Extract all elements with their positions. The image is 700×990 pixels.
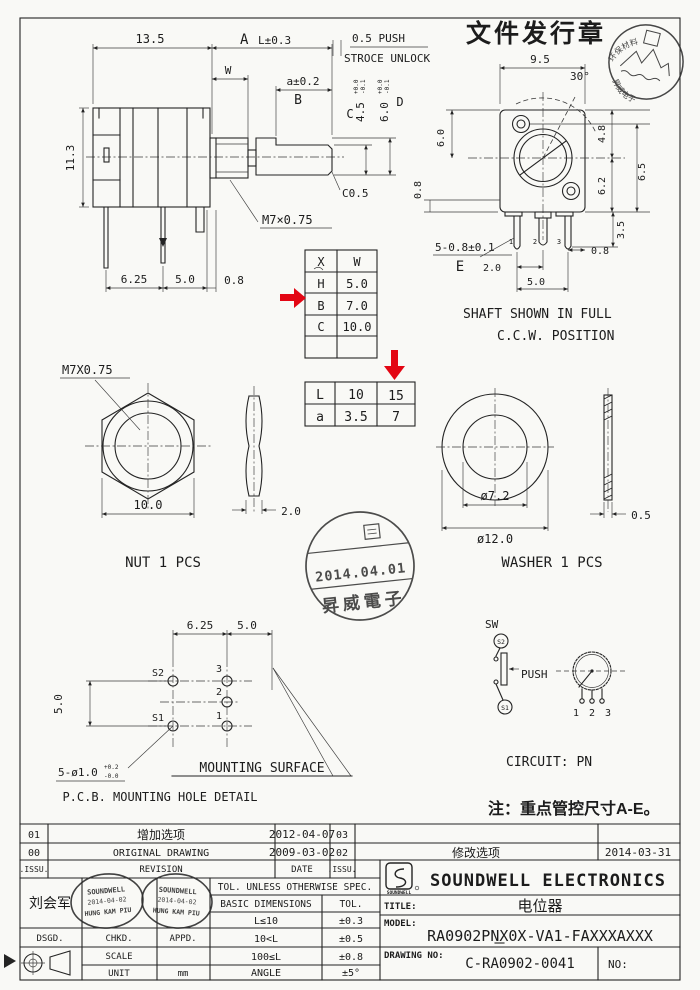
front-view: 30° 1 2 3 9.5 4.8 6.2 6.5 3.5 0.8 6.0: [413, 53, 650, 344]
option-val-b: 7.0: [346, 299, 368, 313]
sw-label: SW: [485, 618, 499, 631]
push-stroke-note: STROCE UNLOCK: [344, 52, 430, 65]
pcb-dim-5-0-v: 5.0: [52, 694, 65, 714]
dim-C-value: 4.5: [354, 102, 367, 122]
len-L: L: [316, 388, 324, 403]
dim-W: W: [225, 64, 232, 77]
tol-row4-range: ANGLE: [251, 968, 281, 979]
pcb-dim-6-25: 6.25: [187, 619, 214, 632]
stamp1-name: HUNG KAM PIU: [84, 906, 132, 918]
washer-view: ø7.2 ø12.0 WASHER 1 PCS 0.5: [436, 388, 651, 571]
label-appd: APPD.: [169, 934, 196, 944]
dim-2-0: 2.0: [483, 263, 501, 274]
len-10: 10: [348, 388, 364, 403]
dim-5-0: 5.0: [175, 273, 195, 286]
hdr-date: DATE: [291, 865, 313, 875]
key-dimensions-note: 注：重点管控尺寸A-E。: [488, 799, 660, 818]
washer-dim-inner: ø7.2: [481, 489, 510, 503]
pin-side-2: [161, 207, 165, 263]
engineering-drawing: 文件发行章 环保材料 昇威电子 13.5: [0, 0, 700, 990]
tol-row4-val: ±5°: [342, 968, 360, 979]
stamp2-name: HUNG KAM PIU: [153, 906, 200, 917]
drawing-sheet: 文件发行章 环保材料 昇威电子 13.5: [0, 0, 700, 990]
tol-row1-val: ±0.3: [339, 916, 363, 927]
first-angle-projection-icon: [21, 951, 70, 975]
tol-row2-range: 10<L: [254, 934, 278, 945]
option-val-c: 10.0: [343, 320, 372, 334]
dim-6-2: 6.2: [597, 177, 608, 195]
tol-col-basic: BASIC DIMENSIONS: [220, 899, 312, 910]
title-label: TITLE:: [384, 902, 417, 912]
pcb-dim-5-0-h: 5.0: [237, 619, 257, 632]
nut-dim-2: 2.0: [281, 505, 301, 518]
label-scale: SCALE: [105, 952, 132, 962]
dim-label-C: C: [346, 107, 353, 121]
rev-desc-02: 修改选项: [452, 845, 500, 860]
mounting-surface-label: MOUNTING SURFACE: [199, 761, 324, 776]
dim-pins: 5-0.8±0.1: [435, 241, 495, 254]
rev-date-00: 2009-03-02: [269, 846, 335, 859]
nut-caption: NUT 1 PCS: [125, 555, 201, 571]
dim-label-D: D: [396, 95, 403, 109]
title-block: 01 增加选项 2012-04-07 03 00 ORIGINAL DRAWIN…: [20, 824, 680, 980]
dim-11-3: 11.3: [64, 145, 77, 172]
mount-leg: [196, 207, 204, 232]
tol-row1-range: L≤10: [254, 916, 278, 927]
option-col-w: W: [353, 255, 361, 269]
dim-D-value: 6.0: [378, 102, 391, 122]
len-3-5: 3.5: [344, 410, 367, 425]
label-3: 3: [216, 664, 222, 675]
red-arrow-right-icon: [280, 288, 306, 308]
option-row-b: B: [317, 299, 324, 313]
company-name: SOUNDWELL ELECTRONICS: [430, 871, 666, 891]
pin-side-1: [104, 207, 108, 268]
dim-30deg: 30°: [570, 70, 590, 83]
circuit-caption: CIRCUIT: PN: [506, 755, 592, 770]
hdr-issu2: .ISSU.: [328, 865, 357, 874]
dim-C-tol-minus: -0.1: [360, 79, 367, 94]
label-s2: S2: [152, 668, 164, 679]
hdr-issu: .ISSU.: [20, 865, 49, 874]
pcb-holes-tol-p: +0.2: [104, 764, 119, 771]
washer-caption: WASHER 1 PCS: [501, 555, 602, 571]
dim-L-tol: L±0.3: [258, 34, 291, 47]
circuit-s2: S2: [497, 638, 505, 646]
label-unit: UNIT: [108, 969, 130, 979]
unit-value: mm: [178, 969, 189, 979]
sheet-border: [20, 18, 680, 980]
push-actuator: [501, 653, 507, 685]
option-val-h: 5.0: [346, 277, 368, 291]
dim-13-5: 13.5: [136, 32, 165, 46]
option-table: X W H 5.0 B 7.0 C 10.0: [280, 250, 377, 358]
stamp2-date: 2014-04-02: [157, 896, 197, 907]
dim-a-tol: a±0.2: [286, 75, 319, 88]
length-table: L 10 15 a 3.5 7: [305, 350, 415, 426]
rev-no-00: 00: [28, 848, 40, 859]
dim-label-E: E: [456, 259, 464, 275]
option-row-c: C: [317, 320, 324, 334]
soundwell-logo-icon: [386, 863, 419, 890]
dim-0-8-left: 0.8: [413, 181, 424, 199]
pot-pin-numbers: 1 2 3: [573, 708, 613, 719]
tol-header: TOL. UNLESS OTHERWISE SPEC.: [218, 882, 372, 893]
pcb-detail: S2 3 2 S1 1 6.25 5.0 5.0 5-ø1.0 +0.2 -0.…: [52, 619, 352, 804]
dim-6-25: 6.25: [121, 273, 148, 286]
caption-shaft-1: SHAFT SHOWN IN FULL: [463, 307, 612, 322]
pin-num-3: 3: [557, 238, 561, 246]
dim-6-0: 6.0: [436, 129, 447, 147]
stamp-company: 昇威電子: [321, 587, 407, 616]
len-a: a: [316, 410, 324, 425]
red-arrow-down-icon: [384, 350, 405, 380]
rev-no-02: 02: [336, 848, 348, 859]
washer-dim-t: 0.5: [631, 509, 651, 522]
fold-mark-icon: [4, 954, 16, 968]
date-stamp: 2014.04.01 昇威電子: [301, 507, 420, 626]
washer-dim-outer: ø12.0: [477, 532, 513, 546]
logo-text: SOUNDWELL: [387, 890, 412, 896]
chamfer-label: C0.5: [342, 187, 369, 200]
label-2: 2: [216, 687, 222, 698]
circuit-s1: S1: [501, 704, 509, 712]
pot-body-side: [93, 108, 210, 207]
dim-6-5: 6.5: [637, 163, 648, 181]
pin-num-2: 2: [533, 238, 537, 246]
title-value: 电位器: [517, 898, 562, 915]
model-value: RA0902PNX0X-VA1-FAXXXAXXX: [427, 927, 653, 945]
len-15: 15: [388, 389, 404, 404]
doc-issue-stamp-title: 文件发行章: [466, 19, 606, 48]
eco-stamp-bottom-text: 昇威电子: [606, 76, 640, 105]
nut-dim-10: 10.0: [134, 498, 163, 512]
push-stroke-dim: 0.5 PUSH: [352, 32, 405, 45]
designer-name: 刘会军: [29, 895, 71, 911]
rev-desc-00: ORIGINAL DRAWING: [113, 848, 209, 859]
dim-label-A: A: [240, 32, 249, 48]
tol-row3-val: ±0.8: [339, 952, 363, 963]
dim-0-8: 0.8: [224, 274, 244, 287]
pcb-caption: P.C.B. MOUNTING HOLE DETAIL: [62, 790, 257, 804]
tol-row3-range: 100≤L: [251, 952, 281, 963]
tol-row2-val: ±0.5: [339, 934, 363, 945]
dim-D-tol-minus: -0.1: [384, 79, 391, 94]
label-s1: S1: [152, 713, 164, 724]
label-chkd: CHKD.: [105, 934, 132, 944]
rev-date-01: 2012-04-07: [269, 828, 335, 841]
svg-text:昇威电子: 昇威电子: [606, 76, 640, 105]
dim-0-8-right: 0.8: [591, 246, 609, 257]
rev-no-03: 03: [336, 830, 348, 841]
pin-3: [565, 216, 571, 249]
circuit-diagram: SW S2 PUSH S1 1 2 3 CIRCUIT: PN: [485, 618, 628, 770]
approval-stamp-1: SOUNDWELL 2014-04-02 HUNG KAM PIU: [69, 871, 145, 931]
push-label: PUSH: [521, 668, 548, 681]
dim-4-8: 4.8: [597, 125, 608, 143]
dim-D-tol-plus: +0.0: [377, 79, 384, 94]
thread-label: M7×0.75: [262, 213, 313, 227]
nut-thread-label: M7X0.75: [62, 363, 113, 377]
option-row-h: H: [317, 277, 324, 291]
label-dsgd: DSGD.: [36, 934, 63, 944]
rev-date-02: 2014-03-31: [605, 846, 671, 859]
pin-1: [514, 216, 520, 249]
caption-shaft-2: C.C.W. POSITION: [497, 329, 614, 344]
rev-no-01: 01: [28, 830, 40, 841]
dim-3-5: 3.5: [616, 221, 627, 239]
dim-9-5: 9.5: [530, 53, 550, 66]
side-view: 13.5 A L±0.3 W a±0.2 B 0.5 PUSH STROCE U…: [64, 32, 430, 292]
dim-5-0-front: 5.0: [527, 277, 545, 288]
dim-label-B: B: [294, 93, 302, 108]
stamp2-company: SOUNDWELL: [158, 886, 196, 897]
no-label: NO:: [608, 958, 628, 971]
label-1: 1: [216, 711, 222, 722]
stamp-date: 2014.04.01: [315, 560, 407, 585]
rev-desc-01: 增加选项: [137, 828, 185, 842]
pcb-holes-tol-m: -0.0: [104, 773, 119, 780]
drawing-no-label: DRAWING NO:: [384, 951, 444, 961]
shaft: [256, 138, 332, 175]
drawing-no-value: C-RA0902-0041: [465, 956, 575, 972]
tol-col-tol: TOL.: [340, 899, 363, 910]
pcb-holes-dim: 5-ø1.0: [58, 766, 98, 779]
dim-C-tol-plus: +0.0: [353, 79, 360, 94]
model-label: MODEL:: [384, 919, 417, 929]
approval-stamp-2: SOUNDWELL 2014-04-02 HUNG KAM PIU: [140, 872, 214, 931]
eco-stamp-icon: 环保材料 昇威电子: [598, 17, 691, 114]
nut-view: M7X0.75 10.0 NUT 1 PCS 2.0: [60, 363, 301, 571]
stamp1-date: 2014-04-02: [87, 895, 127, 906]
len-7: 7: [392, 410, 400, 425]
